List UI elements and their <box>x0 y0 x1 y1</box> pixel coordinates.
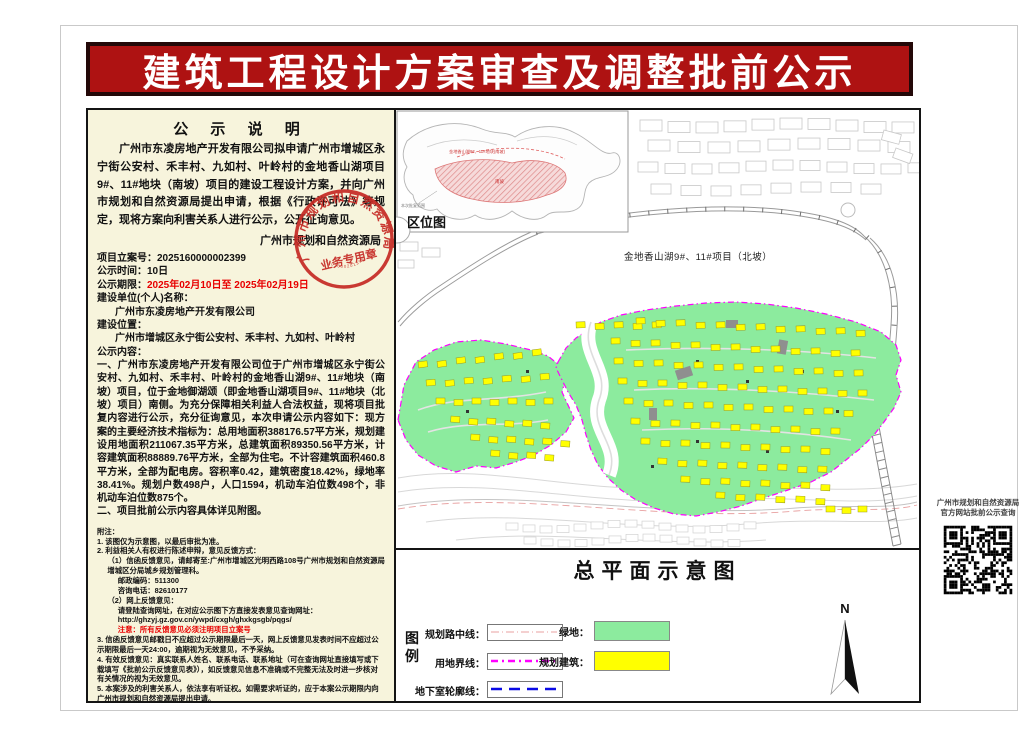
legend-basement-outline-label: 地下室轮廓线： <box>401 683 485 698</box>
period-row: 公示期限：2025年02月10日至 2025年02月19日 <box>97 279 385 292</box>
qr-block: 广州市规划和自然资源局 官方网站批前公示查询 <box>929 498 1027 602</box>
site-plan-panel: 金地香山湖9#、11#项目（北坡） 金地香山湖9#、11#地块(南坡) 南坡 本… <box>394 108 921 703</box>
inset-note-text: 本次批复范围 <box>401 202 425 208</box>
notice-page: 建筑工程设计方案审查及调整批前公示 公 示 说 明 广州市东凌房地产开发有限公司… <box>60 25 1018 711</box>
north-slope-label: 金地香山湖9#、11#项目（北坡） <box>624 251 772 263</box>
plan-legend-area: 总平面示意图 图例 规划路中线： 用地界线： 地下室轮廓线： 绿地： 规划建筑：… <box>396 550 919 701</box>
notice-heading: 公 示 说 明 <box>97 118 385 139</box>
notice-body: 广州市东凌房地产开发有限公司拟申请广州市增城区永宁街公安村、禾丰村、九如村、叶岭… <box>97 141 385 230</box>
location-value: 广州市增城区永宁街公安村、禾丰村、九如村、叶岭村 <box>97 332 385 345</box>
legend-greenery-sample <box>594 621 670 641</box>
applicant-label: 建设单位(个人)名称： <box>97 292 385 305</box>
notice-signature: 广州市规划和自然资源局 <box>97 232 385 248</box>
notice-notes: 附注： 1. 该图仅为示意图，以最后审批为准。 2. 利益相关人有权进行陈述申辩… <box>97 527 385 703</box>
site-plan-drawing: 金地香山湖9#、11#项目（北坡） 金地香山湖9#、11#地块(南坡) 南坡 本… <box>396 110 919 548</box>
case-number-row: 项目立案号：2025160000002399 <box>97 252 385 265</box>
inset-label: 区位图 <box>407 215 446 230</box>
qr-code <box>941 523 1015 597</box>
applicant-name: 广州市东凌房地产开发有限公司 <box>97 306 385 319</box>
north-label: N <box>840 601 849 616</box>
project-info: 项目立案号：2025160000002399 公示时间：10日 公示期限：202… <box>97 252 385 359</box>
plan-title: 总平面示意图 <box>396 555 919 585</box>
legend-planned-building-sample <box>594 651 670 671</box>
inset-area-text: 南坡 <box>495 178 504 185</box>
site-plan-map: 金地香山湖9#、11#项目（北坡） 金地香山湖9#、11#地块(南坡) 南坡 本… <box>396 110 919 550</box>
qr-caption-line1: 广州市规划和自然资源局 <box>929 498 1027 508</box>
content-para2: 二、项目批前公示内容具体详见附图。 <box>97 505 385 518</box>
location-inset: 金地香山湖9#、11#地块(南坡) 南坡 本次批复范围 区位图 <box>396 111 628 243</box>
content-label: 公示内容： <box>97 346 385 359</box>
period-dates: 2025年02月10日至 2025年02月19日 <box>147 280 309 291</box>
legend-planned-building-label: 规划建筑： <box>529 654 589 669</box>
inset-site-text: 金地香山湖9#、11#地块(南坡) <box>449 148 506 155</box>
legend-site-boundary-label: 用地界线： <box>401 655 485 670</box>
notice-text-column: 公 示 说 明 广州市东凌房地产开发有限公司拟申请广州市增城区永宁街公安村、禾丰… <box>86 108 396 703</box>
feedback-url: http://ghzyj.gz.gov.cn/ywpd/cxgh/ghxkgsg… <box>97 615 385 625</box>
legend-basement-outline-sample <box>487 681 563 698</box>
qr-caption-line2: 官方网站批前公示查询 <box>929 508 1027 518</box>
case-number: 2025160000002399 <box>157 253 246 264</box>
content-para1: 一、广州市东凌房地产开发有限公司位于广州市增城区永宁街公安村、九如村、禾丰村、叶… <box>97 359 385 505</box>
title-banner: 建筑工程设计方案审查及调整批前公示 <box>86 42 913 96</box>
duration-row: 公示时间：10日 <box>97 265 385 278</box>
page-title: 建筑工程设计方案审查及调整批前公示 <box>142 42 856 97</box>
legend-greenery-label: 绿地： <box>529 624 589 639</box>
legend-road-centerline-label: 规划路中线： <box>401 626 485 641</box>
notes-warning: 注意：所有反馈意见必须注明项目立案号 <box>97 625 385 635</box>
notice-content: 一、广州市东凌房地产开发有限公司位于广州市增城区永宁街公安村、九如村、禾丰村、叶… <box>97 359 385 519</box>
location-label: 建设位置： <box>97 319 385 332</box>
north-arrow: N <box>822 600 868 705</box>
